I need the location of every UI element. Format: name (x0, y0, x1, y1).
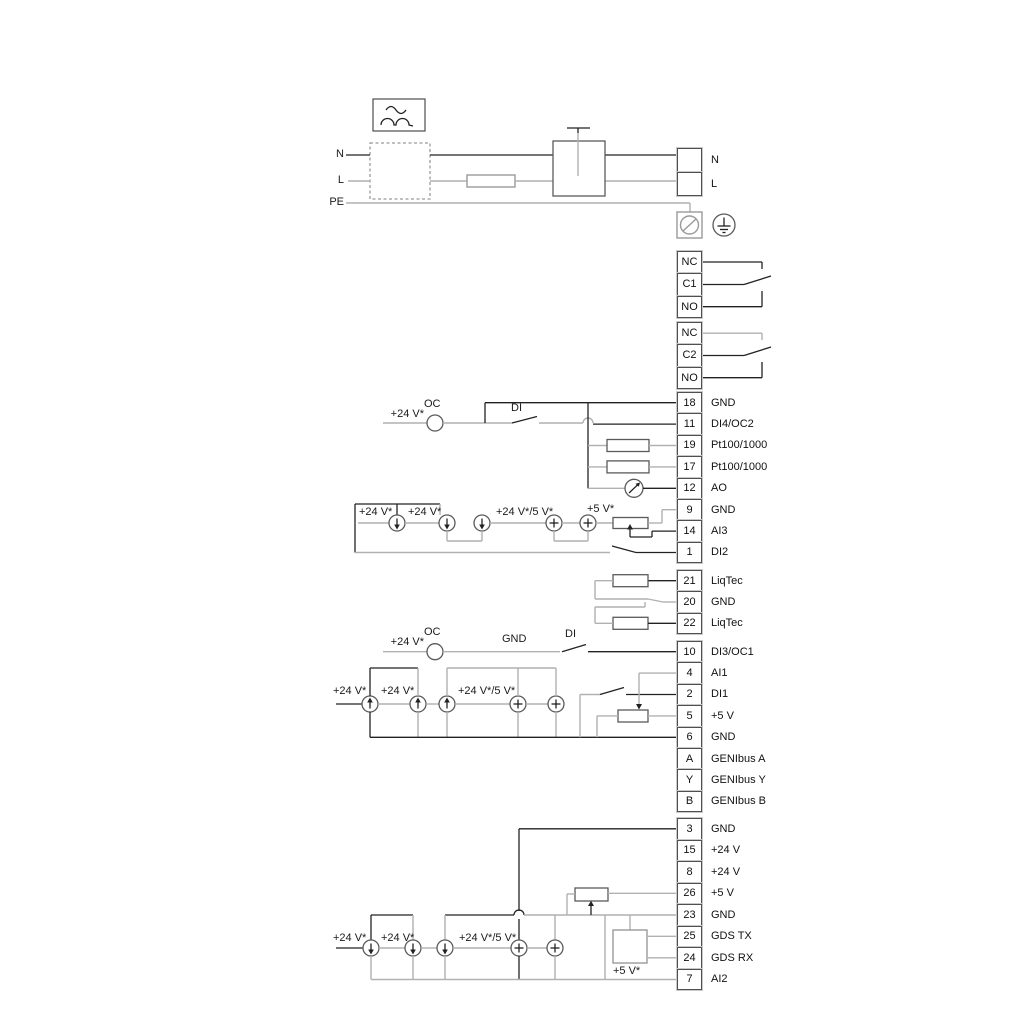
terminal-label: N (711, 154, 719, 166)
terminal-label: +5 V (711, 710, 734, 722)
relay2-contact-icon (702, 333, 771, 378)
v24-label: +24 V* (359, 506, 392, 518)
current-source-icon (362, 696, 378, 712)
terminal-label: LiqTec (711, 617, 743, 629)
terminal-number: NO (677, 367, 702, 389)
terminal-label: GND (711, 823, 735, 835)
voltage-source-icon (580, 515, 596, 531)
v5-label: +5 V* (613, 965, 640, 977)
supply-n-label: N (330, 148, 344, 160)
terminal-strip-liqtec: 21 LiqTec 20 GND 22 LiqTec (677, 570, 702, 634)
terminal-label: AI3 (711, 525, 728, 537)
terminal-number: 19 (677, 435, 702, 456)
terminal-number: 15 (677, 840, 702, 862)
terminal-row: 19 Pt100/1000 (677, 435, 702, 456)
fuse-icon (467, 175, 515, 187)
terminal-number (677, 148, 702, 172)
di-label: DI (511, 402, 522, 414)
v24-label: +24 V* (333, 685, 366, 697)
terminal-number: 20 (677, 591, 702, 612)
terminal-label: +24 V (711, 866, 740, 878)
relay1-contact-icon (702, 262, 771, 307)
terminal-number: 21 (677, 570, 702, 591)
main-switch-icon (553, 141, 605, 196)
terminal-label: DI4/OC2 (711, 418, 754, 430)
terminal-number: 23 (677, 904, 702, 926)
terminal-number: NC (677, 322, 702, 344)
voltage-source-icon (510, 696, 526, 712)
v5-label: +5 V* (587, 503, 614, 515)
terminal-row: 11 DI4/OC2 (677, 413, 702, 434)
ai2-gds-circuit (336, 829, 677, 980)
oc-label: OC (424, 626, 441, 638)
gds-module-icon (613, 930, 647, 963)
terminal-label: GENIbus A (711, 753, 765, 765)
terminal-number: 12 (677, 478, 702, 499)
terminal-row: N (677, 148, 702, 172)
di-switch-icon (562, 645, 586, 652)
voltage-source-icon (548, 696, 564, 712)
terminal-row: 17 Pt100/1000 (677, 456, 702, 477)
terminal-label: GENIbus Y (711, 774, 766, 786)
terminal-label: L (711, 178, 717, 190)
current-source-icon (439, 696, 455, 712)
terminal-label: GND (711, 596, 735, 608)
ai1-di1-circuit (336, 668, 677, 737)
terminal-row: NC (677, 251, 702, 273)
current-source-icon (474, 515, 490, 531)
v24-label: +24 V* (381, 932, 414, 944)
terminal-row: NO (677, 296, 702, 318)
terminal-row: NO (677, 367, 702, 389)
terminal-row: 15 +24 V (677, 840, 702, 862)
terminal-number: 18 (677, 392, 702, 413)
terminal-row: 5 +5 V (677, 705, 702, 726)
analog-meter-icon (625, 479, 643, 497)
liqtec-sensor-icon (613, 617, 648, 629)
v24-5v-label: +24 V*/5 V* (459, 932, 516, 944)
terminal-row: L (677, 172, 702, 196)
terminal-number: 11 (677, 413, 702, 434)
current-source-icon (437, 940, 453, 956)
terminal-label: AI1 (711, 667, 728, 679)
liqtec-circuit (595, 575, 677, 630)
terminal-number: NO (677, 296, 702, 318)
terminal-row: 23 GND (677, 904, 702, 926)
v24-5v-label: +24 V*/5 V* (458, 685, 515, 697)
v24-label: +24 V* (333, 932, 366, 944)
ac-supply-icon (373, 99, 425, 131)
di-switch-icon (512, 417, 537, 424)
terminal-row: 24 GDS RX (677, 947, 702, 969)
terminal-number: 6 (677, 727, 702, 748)
terminal-number: C1 (677, 273, 702, 295)
terminal-number: 17 (677, 456, 702, 477)
terminal-row: 2 DI1 (677, 684, 702, 705)
supply-pe-label: PE (320, 196, 344, 208)
pt100-ao-circuit (588, 440, 677, 498)
terminal-row: 6 GND (677, 727, 702, 748)
terminal-row: C1 (677, 273, 702, 295)
terminal-number: 14 (677, 520, 702, 541)
terminal-row: 7 AI2 (677, 969, 702, 991)
terminal-number: NC (677, 251, 702, 273)
terminal-label: GDS TX (711, 930, 752, 942)
terminal-strip-a: 18 GND 11 DI4/OC2 19 Pt100/1000 17 Pt100… (677, 392, 702, 563)
terminal-number: 2 (677, 684, 702, 705)
terminal-number: 26 (677, 883, 702, 905)
terminal-number: 1 (677, 542, 702, 563)
terminal-number: 3 (677, 818, 702, 840)
open-collector-icon (427, 415, 443, 431)
terminal-label: GND (711, 731, 735, 743)
terminal-label: GND (711, 909, 735, 921)
terminal-row: 9 GND (677, 499, 702, 520)
relay2-terminal-block: NC C2 NO (677, 322, 702, 389)
earth-icon (713, 214, 735, 236)
terminal-number: A (677, 748, 702, 769)
terminal-number: 22 (677, 613, 702, 634)
terminal-number: 7 (677, 969, 702, 991)
di2-switch-icon (612, 546, 636, 553)
gnd-label: GND (502, 633, 526, 645)
terminal-strip-c: 10 DI3/OC1 4 AI1 2 DI1 5 +5 V 6 GND A GE… (677, 641, 702, 812)
terminal-label: Pt100/1000 (711, 461, 767, 473)
potentiometer-icon (618, 710, 648, 722)
terminal-number: 4 (677, 662, 702, 683)
terminal-row: 25 GDS TX (677, 926, 702, 948)
terminal-label: +24 V (711, 844, 740, 856)
potentiometer-icon (575, 888, 608, 901)
terminal-row: A GENIbus A (677, 748, 702, 769)
relay1-terminal-block: NC C1 NO (677, 251, 702, 318)
terminal-number: C2 (677, 344, 702, 366)
oc-label: OC (424, 398, 441, 410)
terminal-label: LiqTec (711, 575, 743, 587)
open-collector-icon (427, 644, 443, 660)
terminal-label: GND (711, 504, 735, 516)
terminal-label: DI2 (711, 546, 728, 558)
liqtec-sensor-icon (613, 575, 648, 587)
terminal-row: 1 DI2 (677, 542, 702, 563)
terminal-row: 12 AO (677, 478, 702, 499)
terminal-number: 24 (677, 947, 702, 969)
pt100-sensor-icon (607, 461, 649, 473)
terminal-number: 25 (677, 926, 702, 948)
terminal-number: 5 (677, 705, 702, 726)
terminal-label: AO (711, 482, 727, 494)
terminal-number (677, 172, 702, 196)
terminal-row: 14 AI3 (677, 520, 702, 541)
terminal-label: GND (711, 397, 735, 409)
terminal-number: B (677, 791, 702, 812)
v24-label: +24 V* (381, 685, 414, 697)
di3-oc1-circuit (383, 644, 677, 660)
terminal-row: 4 AI1 (677, 662, 702, 683)
v24-5v-label: +24 V*/5 V* (496, 506, 553, 518)
terminal-strip-d: 3 GND 15 +24 V 8 +24 V 26 +5 V 23 GND 25… (677, 818, 702, 990)
terminal-row: 18 GND (677, 392, 702, 413)
pt100-sensor-icon (607, 440, 649, 452)
terminal-row: C2 (677, 344, 702, 366)
terminal-label: Pt100/1000 (711, 439, 767, 451)
terminal-label: AI2 (711, 973, 728, 985)
terminal-row: 3 GND (677, 818, 702, 840)
terminal-row: Y GENIbus Y (677, 769, 702, 790)
di-label: DI (565, 628, 576, 640)
v24-label: +24 V* (386, 408, 424, 420)
terminal-number: 8 (677, 861, 702, 883)
wiring-diagram-canvas: N L PE OC +24 V* DI +24 V* +24 V* +24 V*… (0, 0, 1024, 1024)
terminal-number: 9 (677, 499, 702, 520)
terminal-label: +5 V (711, 887, 734, 899)
terminal-label: GENIbus B (711, 795, 766, 807)
terminal-row: 21 LiqTec (677, 570, 702, 591)
terminal-label: GDS RX (711, 952, 753, 964)
terminal-row: 22 LiqTec (677, 613, 702, 634)
v24-label: +24 V* (386, 636, 424, 648)
terminal-row: NC (677, 322, 702, 344)
power-terminal-block: N L (677, 148, 702, 196)
terminal-row: 10 DI3/OC1 (677, 641, 702, 662)
terminal-row: 20 GND (677, 591, 702, 612)
terminal-row: B GENIbus B (677, 791, 702, 812)
voltage-source-icon (547, 940, 563, 956)
terminal-row: 8 +24 V (677, 861, 702, 883)
filter-box-icon (370, 143, 430, 199)
supply-l-label: L (330, 174, 344, 186)
terminal-number: Y (677, 769, 702, 790)
current-source-icon (439, 515, 455, 531)
wiper-arrow-icon (636, 704, 642, 710)
di1-switch-icon (600, 688, 624, 695)
terminal-number: 10 (677, 641, 702, 662)
terminal-label: DI3/OC1 (711, 646, 754, 658)
current-source-icon (410, 696, 426, 712)
terminal-label: DI1 (711, 688, 728, 700)
v24-label: +24 V* (408, 506, 441, 518)
terminal-row: 26 +5 V (677, 883, 702, 905)
